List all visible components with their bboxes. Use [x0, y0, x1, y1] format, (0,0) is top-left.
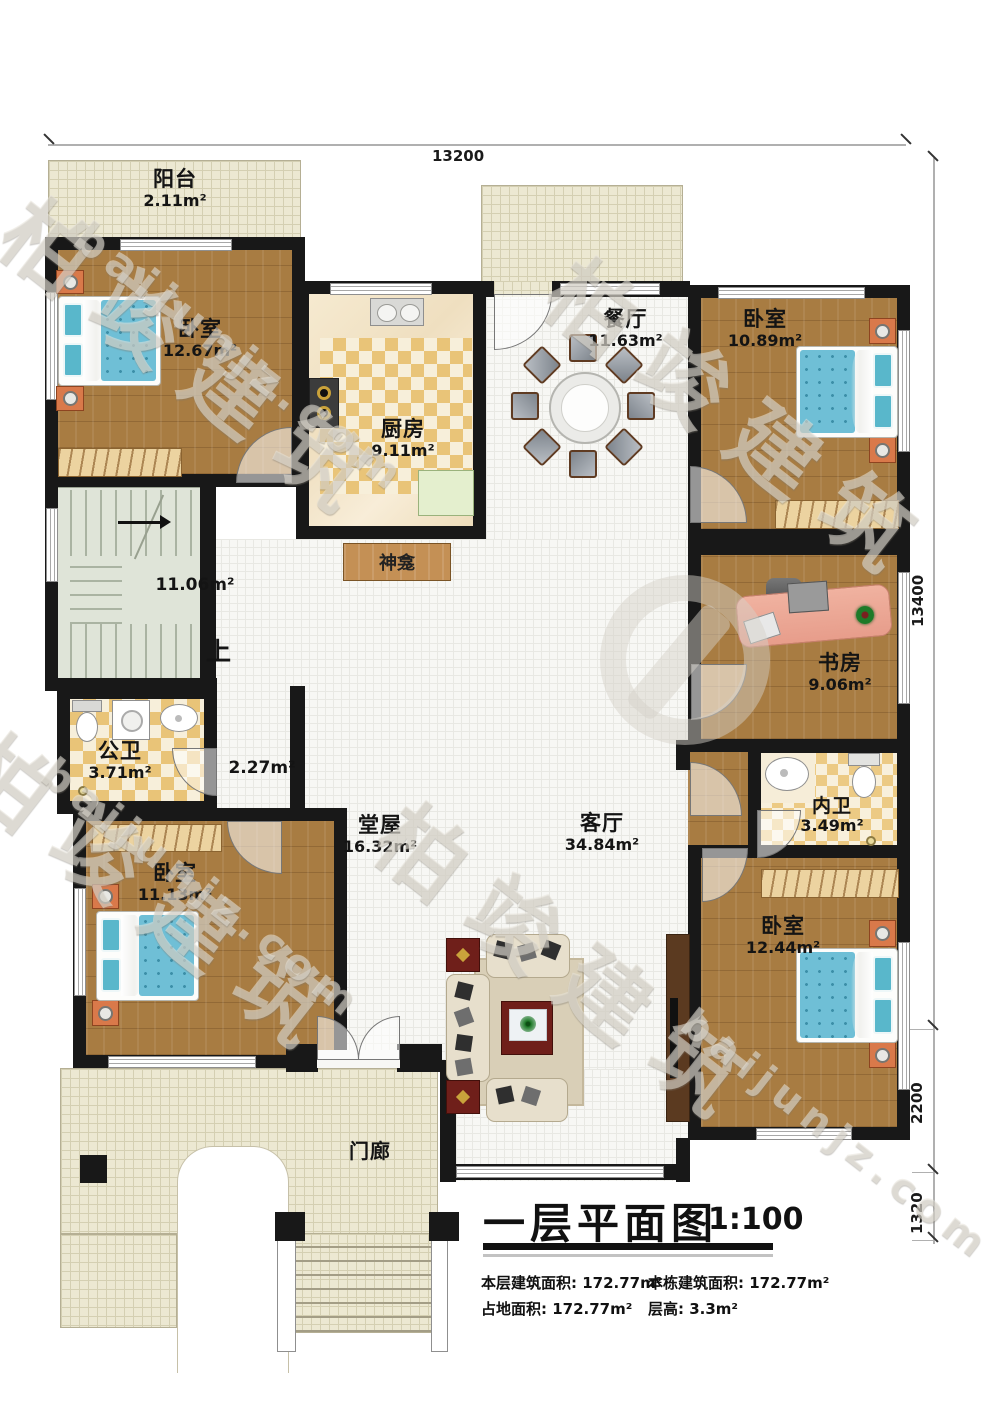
window [330, 283, 432, 295]
entry-steps [283, 1233, 436, 1333]
burner-icon [317, 406, 331, 420]
wall [286, 1044, 318, 1072]
window [456, 1166, 664, 1178]
nightstand [869, 920, 896, 947]
window [756, 1128, 852, 1140]
toilet-tank [848, 753, 880, 766]
patio-pillar [80, 1155, 107, 1183]
nightstand-knob-icon [98, 1006, 113, 1021]
sofa-pillow [521, 1086, 541, 1106]
toilet [852, 766, 876, 798]
table-star-icon [456, 1090, 470, 1104]
stair-treads [70, 556, 122, 624]
dining-table-top [561, 384, 609, 432]
nightstand-knob-icon [875, 926, 890, 941]
nightstand [56, 270, 84, 294]
nightstand-knob-icon [63, 275, 78, 290]
shrine-label: 神龛 [379, 549, 415, 575]
mattress [139, 915, 194, 996]
room-label-bedroom-tr: 卧室 10.89m² [705, 308, 825, 349]
dimension-line-right [933, 158, 935, 1244]
corridor-area-label: 2.27m² [222, 758, 302, 778]
terrace-floor [481, 185, 683, 283]
room-label-study: 书房 9.06m² [780, 652, 900, 693]
dimension-label-right: 13400 [909, 567, 927, 627]
pillow [101, 958, 121, 992]
plant-icon [856, 606, 874, 624]
nightstand [92, 1000, 119, 1026]
double-bed [96, 911, 199, 1001]
page-title: 一层平面图 [483, 1190, 718, 1251]
sink-basin-icon [400, 304, 420, 322]
window [898, 330, 910, 452]
wall [397, 1044, 442, 1072]
stairs-area-label: 11.06m² [140, 575, 250, 595]
nightstand [869, 1042, 896, 1068]
window [74, 888, 86, 996]
room-label-kitchen: 厨房 9.11m² [343, 418, 463, 459]
window [560, 283, 660, 295]
kitchen-cabinet [418, 470, 474, 516]
sofa-pillow [455, 1034, 473, 1052]
room-label-bedroom-tl: 卧室 12.67m² [140, 318, 260, 359]
toilet-tank [72, 700, 102, 712]
dining-chair [627, 392, 655, 420]
window [46, 508, 58, 582]
pillow [873, 998, 893, 1034]
double-bed [796, 948, 898, 1043]
title-underline-light [483, 1254, 773, 1257]
room-label-balcony: 阳台 2.11m² [100, 168, 250, 209]
porch-column [431, 1240, 448, 1352]
window [46, 292, 58, 400]
nightstand [869, 318, 896, 344]
sofa-pillow [517, 942, 537, 962]
stat-building-area: 本栋建筑面积: 172.77m² [648, 1272, 829, 1293]
toilet [76, 712, 98, 742]
nightstand-knob-icon [875, 324, 890, 339]
pillow [63, 343, 83, 377]
room-label-porch: 门廊 [330, 1140, 410, 1162]
window [718, 287, 865, 299]
room-label-bedroom-br: 卧室 12.44m² [723, 915, 843, 956]
dimension-stub [912, 1172, 934, 1173]
table-star-icon [456, 948, 470, 962]
sofa [486, 1078, 568, 1122]
stat-footprint-area: 占地面积: 172.77m² [481, 1298, 632, 1319]
wardrobe [58, 448, 182, 477]
dining-table [549, 372, 621, 444]
wardrobe [775, 500, 899, 529]
room-label-hall: 堂屋 16.32m² [325, 814, 435, 855]
nightstand-knob-icon [875, 1048, 890, 1063]
sofa-pillow [493, 940, 512, 959]
washer-drum-icon [121, 710, 143, 732]
stat-storey-height: 层高: 3.3m² [648, 1298, 738, 1319]
bathroom-sink [160, 704, 198, 732]
window [120, 239, 232, 251]
sofa-pillow [541, 940, 562, 961]
stat-floor-area: 本层建筑面积: 172.77m² [481, 1272, 662, 1293]
title-underline [483, 1243, 773, 1250]
room-label-inner-bath: 内卫 3.49m² [772, 796, 892, 835]
sofa-pillow [496, 1086, 515, 1105]
dimension-label-right3: 1320 [908, 1184, 926, 1234]
shrine-shelf: 神龛 [343, 543, 451, 581]
floor-drain-icon [866, 836, 876, 846]
sink-basin-icon [377, 304, 397, 322]
window [898, 942, 910, 1090]
drawing-scale: 1:100 [708, 1202, 804, 1237]
wall [290, 686, 305, 816]
room-label-public-bath: 公卫 3.71m² [62, 740, 178, 781]
dimension-tick [43, 133, 54, 144]
side-table [446, 938, 480, 972]
nightstand-knob-icon [98, 889, 113, 904]
arrow-head-icon [160, 515, 171, 529]
dimension-line-top [48, 144, 906, 146]
kitchen-sink [370, 298, 424, 326]
wall [676, 740, 690, 770]
wardrobe [92, 824, 222, 852]
nightstand [869, 437, 896, 463]
porch-column [277, 1240, 296, 1352]
dimension-stub [912, 1240, 934, 1241]
porch-pillar [275, 1212, 305, 1241]
bed-sheet [851, 350, 873, 433]
burner-icon [317, 386, 331, 400]
room-label-living: 客厅 34.84m² [542, 812, 662, 853]
patio-cutout [177, 1146, 289, 1373]
sofa [446, 974, 490, 1082]
double-bed [796, 346, 898, 438]
monitor-icon [787, 581, 829, 614]
nightstand [56, 386, 84, 411]
stairs-up-label: 上 [206, 632, 231, 668]
sofa-pillow [455, 1058, 474, 1077]
porch-pillar [429, 1212, 459, 1241]
room-label-dining: 餐厅 11.63m² [568, 308, 683, 349]
dimension-stub [910, 1029, 934, 1030]
mattress [800, 350, 855, 433]
sink-drain-icon [780, 769, 788, 777]
stove [309, 378, 339, 428]
dining-chair [511, 392, 539, 420]
pillow [873, 956, 893, 992]
floor-drain-icon [78, 786, 88, 796]
window [108, 1056, 256, 1068]
pillow [873, 394, 893, 429]
room-label-bedroom-bl: 卧室 11.13m² [115, 862, 235, 903]
wall [45, 678, 217, 691]
wardrobe [761, 869, 899, 898]
patio-walk [60, 1234, 177, 1328]
mattress [800, 952, 855, 1038]
plant-icon [520, 1016, 536, 1032]
sink-drain-icon [175, 715, 182, 722]
dimension-label-right2: 2200 [908, 1074, 926, 1124]
stair-direction-arrow [118, 521, 160, 524]
pillow [63, 303, 83, 337]
tv-icon [670, 998, 678, 1078]
room-study [688, 542, 910, 752]
coffee-table [501, 1001, 553, 1055]
dimension-label-top: 13200 [432, 147, 484, 165]
pillow [873, 353, 893, 388]
pillow [101, 918, 121, 952]
nightstand-knob-icon [875, 443, 890, 458]
side-table [446, 1080, 480, 1114]
dining-chair [569, 450, 597, 478]
washing-machine [112, 700, 150, 740]
sofa-pillow [454, 1007, 475, 1028]
sofa [486, 934, 570, 978]
bathroom-sink [765, 757, 809, 791]
nightstand-knob-icon [63, 391, 78, 406]
sofa-pillow [454, 981, 473, 1000]
floorplan-page: 13200 13400 2200 1320 神龛 [0, 0, 1000, 1416]
bed-sheet [851, 952, 873, 1038]
dimension-tick [900, 133, 911, 144]
